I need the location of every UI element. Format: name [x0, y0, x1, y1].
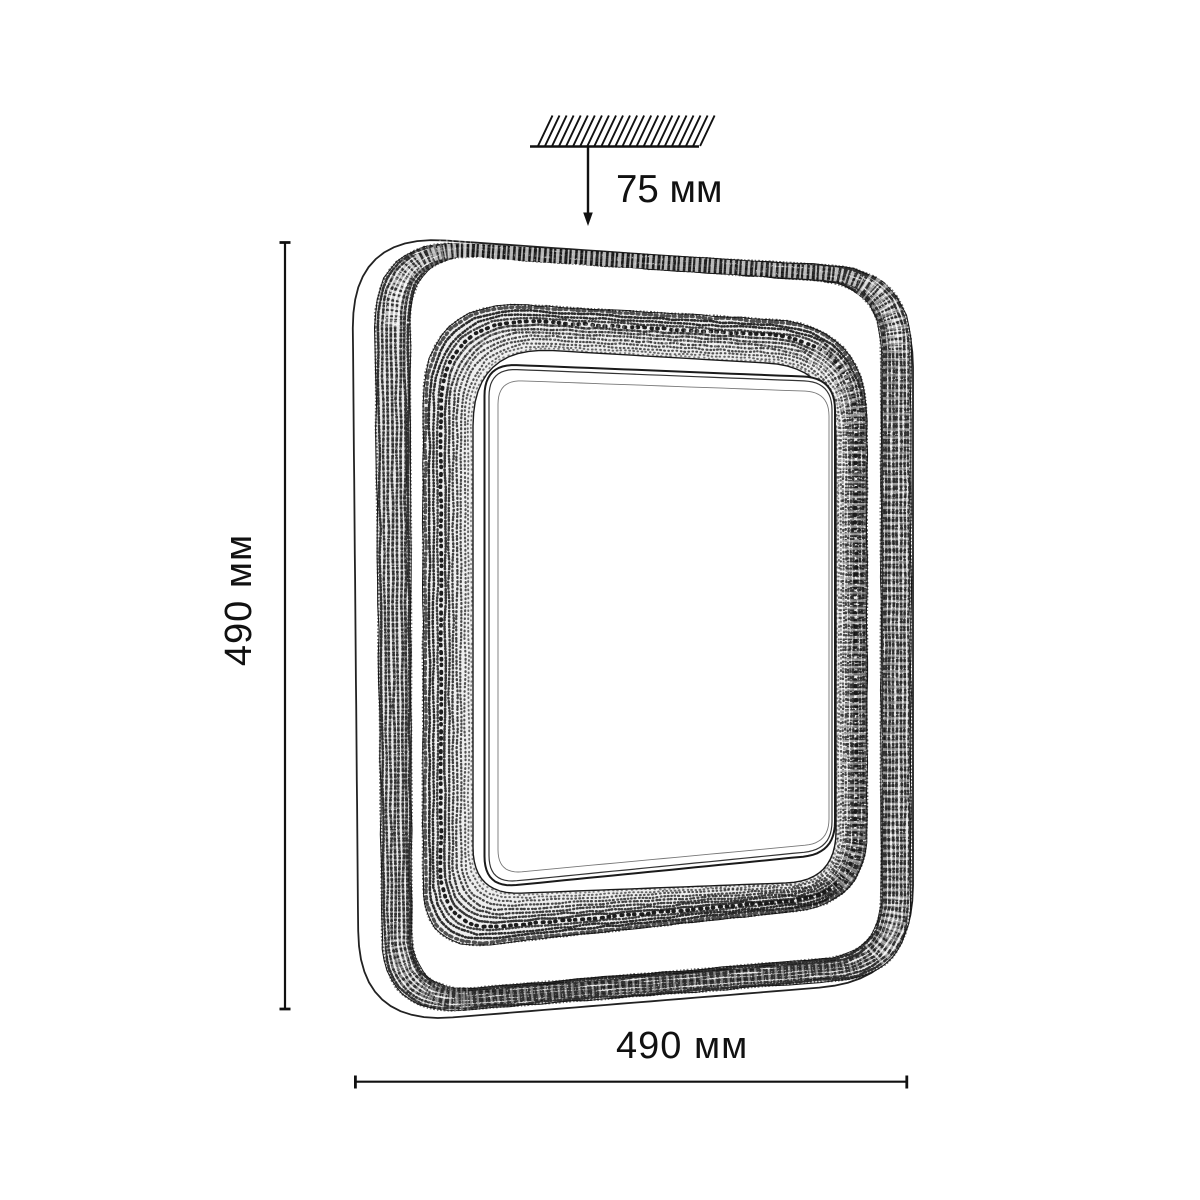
svg-text:490 мм: 490 мм: [616, 1025, 748, 1067]
svg-text:490 мм: 490 мм: [218, 534, 260, 666]
svg-text:75 мм: 75 мм: [616, 168, 722, 211]
